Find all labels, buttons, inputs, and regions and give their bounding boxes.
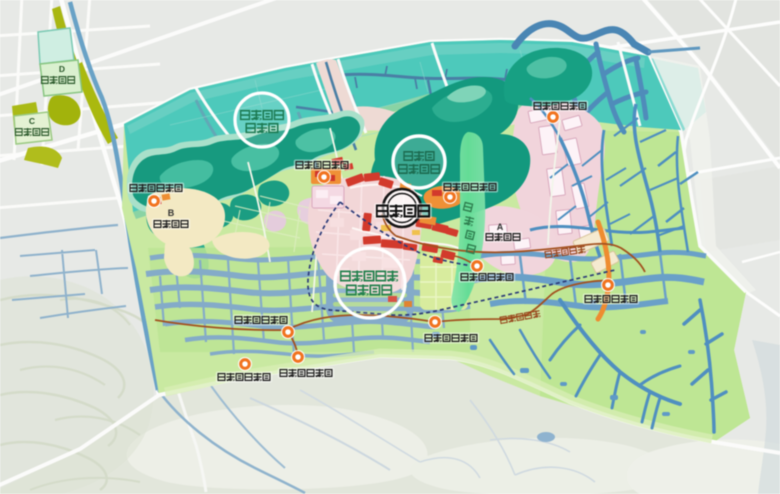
svg-text:D: D	[59, 64, 65, 74]
svg-text:C: C	[29, 116, 35, 126]
svg-text:B: B	[168, 208, 175, 218]
svg-text:A: A	[497, 222, 504, 232]
